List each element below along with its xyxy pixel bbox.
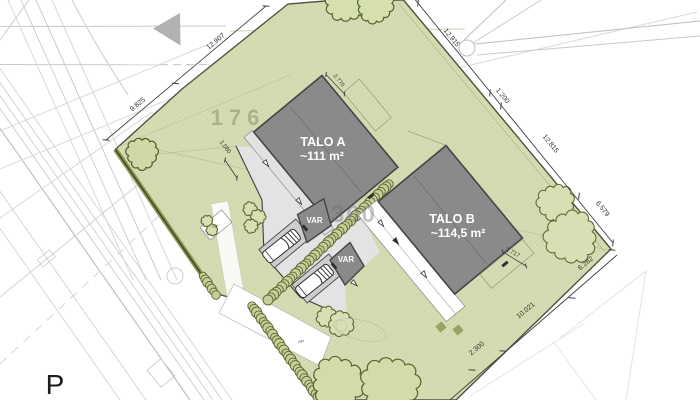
svg-text:VAR: VAR — [306, 216, 323, 225]
svg-text:~114,5 m²: ~114,5 m² — [431, 226, 485, 240]
svg-text:~111 m²: ~111 m² — [300, 149, 344, 163]
svg-text:P: P — [46, 369, 65, 400]
svg-text:300: 300 — [331, 201, 377, 228]
svg-text:TALO A: TALO A — [300, 135, 345, 149]
svg-text:AP: AP — [298, 339, 304, 344]
svg-text:176: 176 — [211, 105, 266, 130]
svg-text:AP: AP — [212, 224, 218, 229]
svg-text:VAR: VAR — [338, 255, 355, 264]
svg-text:TALO B: TALO B — [429, 212, 475, 226]
